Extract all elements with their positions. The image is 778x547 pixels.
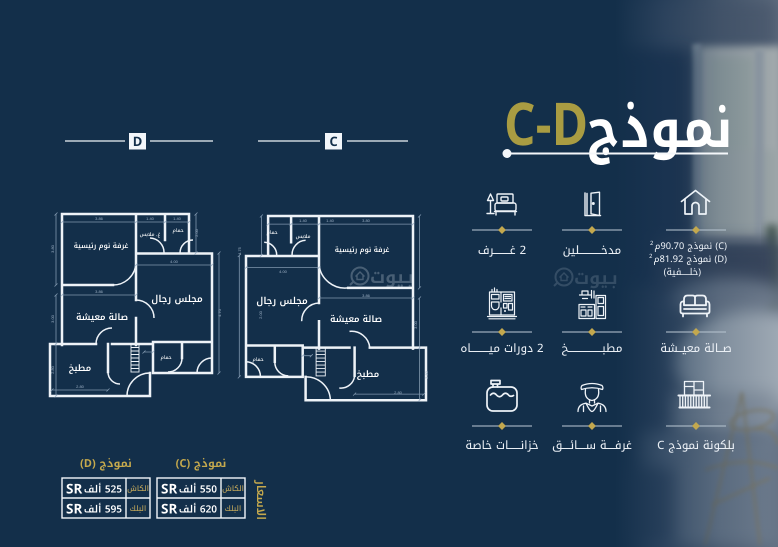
svg-text:2.80: 2.80 — [424, 370, 429, 379]
svg-text:4.75: 4.75 — [237, 246, 242, 255]
svg-text:4.00: 4.00 — [279, 269, 288, 274]
svg-text:2.80: 2.80 — [50, 365, 55, 374]
svg-text:3.86: 3.86 — [95, 289, 104, 294]
svg-text:3.86: 3.86 — [95, 216, 104, 221]
svg-text:1.40: 1.40 — [299, 218, 308, 223]
svg-text:4.00: 4.00 — [170, 259, 179, 264]
svg-text:1.40: 1.40 — [326, 218, 335, 223]
svg-text:4.70: 4.70 — [217, 308, 222, 317]
svg-text:1.40: 1.40 — [146, 216, 155, 221]
svg-text:2.80: 2.80 — [76, 384, 85, 389]
svg-text:2.00: 2.00 — [194, 228, 199, 237]
svg-text:2.80: 2.80 — [394, 390, 403, 395]
svg-text:3.86: 3.86 — [362, 293, 371, 298]
svg-text:1.40: 1.40 — [173, 216, 182, 221]
svg-text:3.80: 3.80 — [362, 218, 371, 223]
svg-text:3.00: 3.00 — [50, 314, 55, 323]
svg-text:3.80: 3.80 — [50, 244, 55, 253]
svg-text:3.00: 3.00 — [413, 320, 418, 329]
svg-text:2.00: 2.00 — [258, 310, 263, 319]
